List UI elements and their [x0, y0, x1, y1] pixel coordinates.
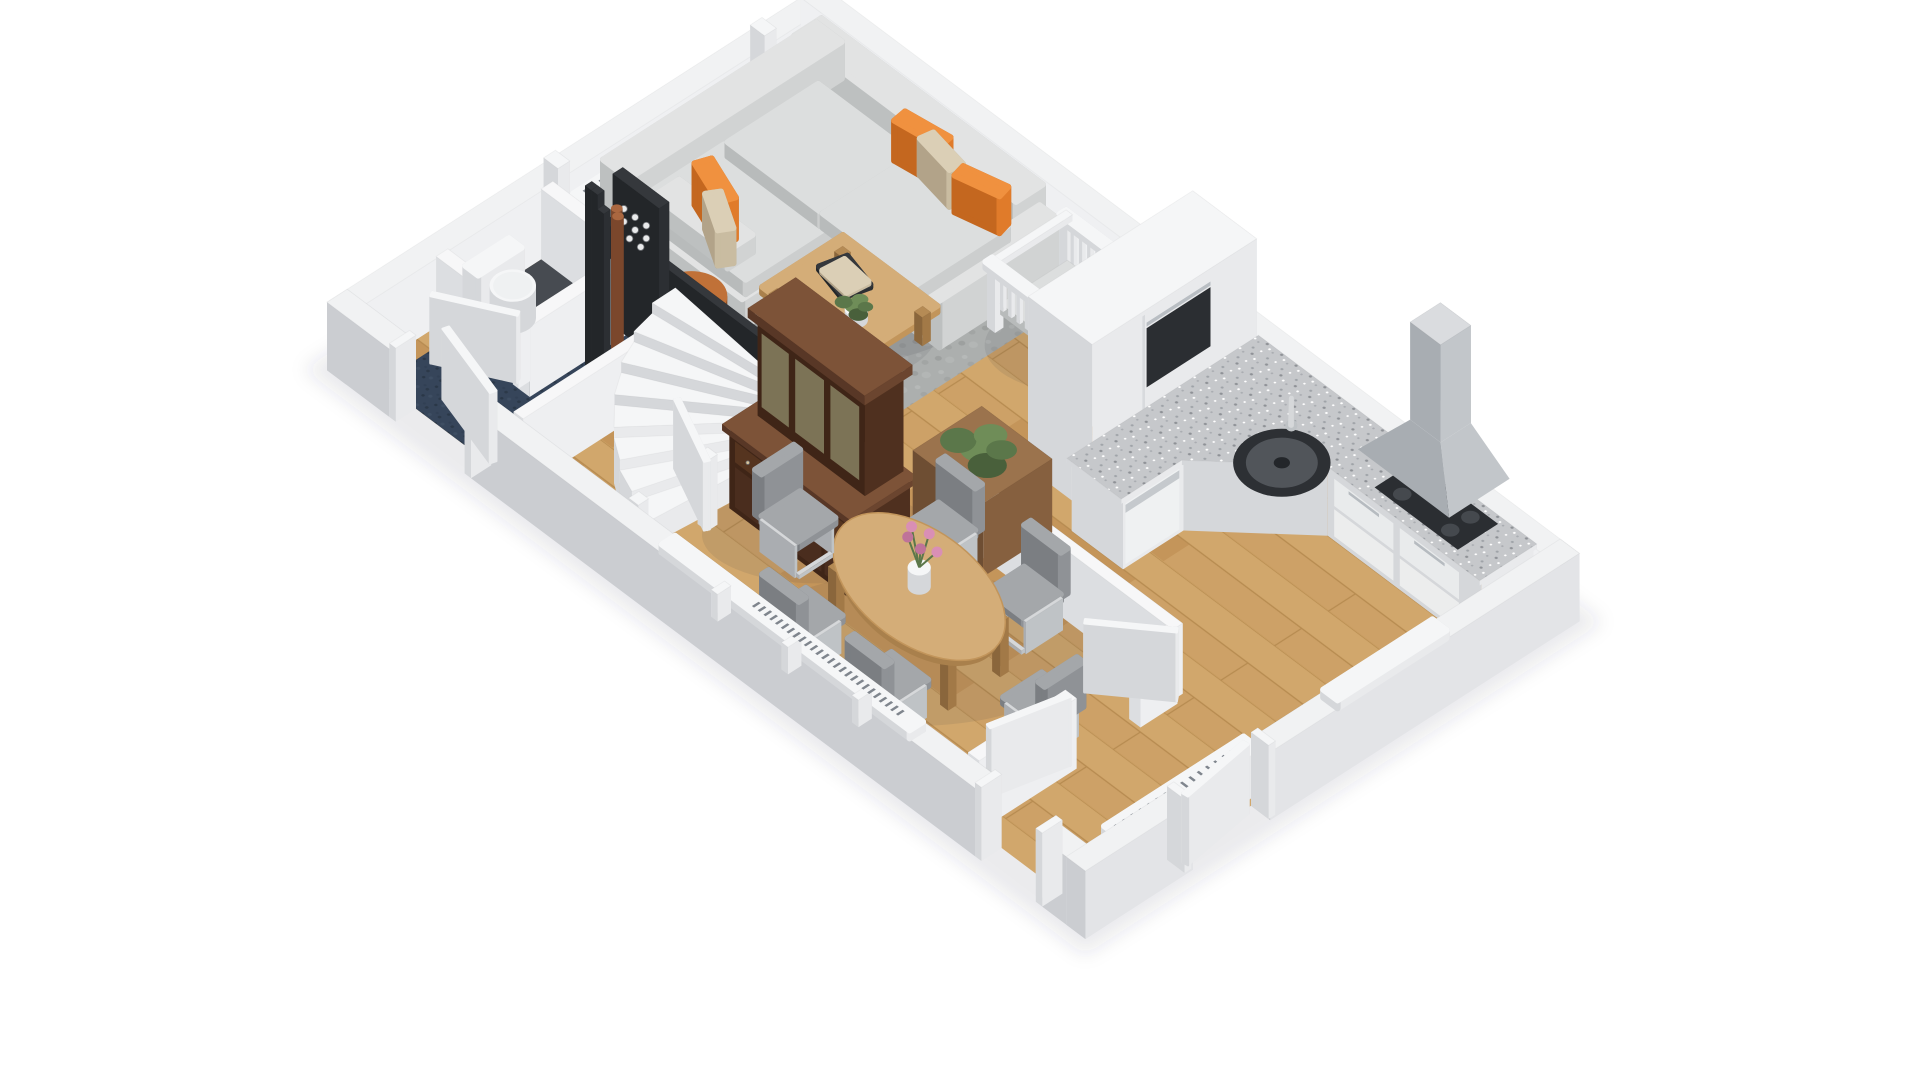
burner-4	[1441, 524, 1460, 537]
kitchen-sink-drain	[1274, 457, 1290, 468]
scene-root	[304, 0, 1602, 955]
apartment-floorplan-3d-render	[0, 0, 1920, 1080]
side-door-post-a	[1251, 728, 1275, 819]
back-door-post-b	[1036, 815, 1063, 906]
range-hood-chimney	[1410, 303, 1471, 443]
burner-2	[1393, 488, 1412, 501]
back-door-post-a	[975, 770, 1002, 861]
toilet-seat	[493, 272, 532, 300]
floorplan-svg	[0, 0, 1920, 1080]
burner-3	[1461, 511, 1480, 524]
kitchen-door	[1085, 619, 1178, 701]
coffee-table-leg-2	[914, 306, 930, 346]
front-door-post-a	[389, 330, 416, 421]
